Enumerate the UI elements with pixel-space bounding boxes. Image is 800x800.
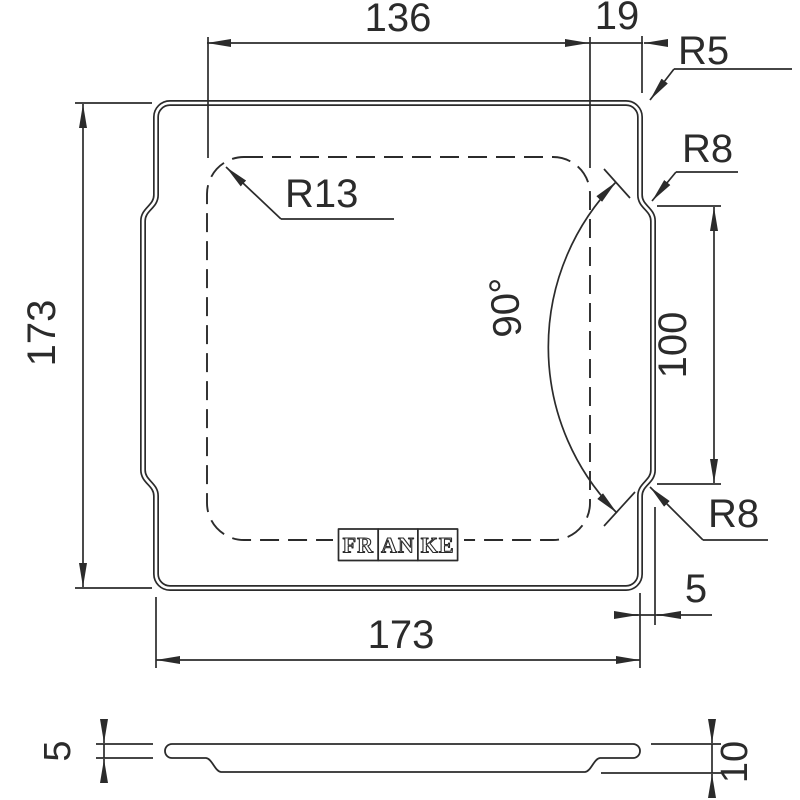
dim-rim-thickness-label: 5 <box>37 740 79 761</box>
dim-total-height-label: 10 <box>714 741 756 783</box>
dim-corner-offset-label: 19 <box>595 0 640 38</box>
dim-inner-width-label: 136 <box>365 0 432 40</box>
technical-drawing: 136 19 R5 R8 R13 <box>0 0 800 800</box>
profile-view: 5 10 <box>37 720 756 797</box>
leader-r8-top <box>652 172 738 201</box>
leader-r8-top-label: R8 <box>682 127 733 171</box>
leader-r5-label: R5 <box>678 29 729 73</box>
franke-logo-segment: FR <box>343 533 374 558</box>
part-outline <box>143 103 653 588</box>
dim-overall-height-label: 173 <box>20 300 64 367</box>
dim-edge-step-label: 5 <box>685 567 707 611</box>
dim-flat-length-label: 100 <box>651 312 695 379</box>
dim-rim-thickness <box>96 721 153 781</box>
plan-view: 136 19 R5 R8 R13 <box>20 0 792 668</box>
dim-angle-label: 90° <box>481 275 530 339</box>
leader-r8-bottom-label: R8 <box>708 492 759 536</box>
leader-r5 <box>650 69 792 100</box>
profile-outline <box>165 744 640 772</box>
franke-logo-segment: KE <box>421 533 455 558</box>
franke-logo: FR AN KE <box>333 525 464 564</box>
technical-drawing-page: 136 19 R5 R8 R13 <box>0 0 800 800</box>
franke-logo-segment: AN <box>381 533 415 558</box>
dim-corner-offset <box>589 36 668 93</box>
dim-overall-width-label: 173 <box>368 613 435 657</box>
leader-r13-label: R13 <box>285 172 358 216</box>
